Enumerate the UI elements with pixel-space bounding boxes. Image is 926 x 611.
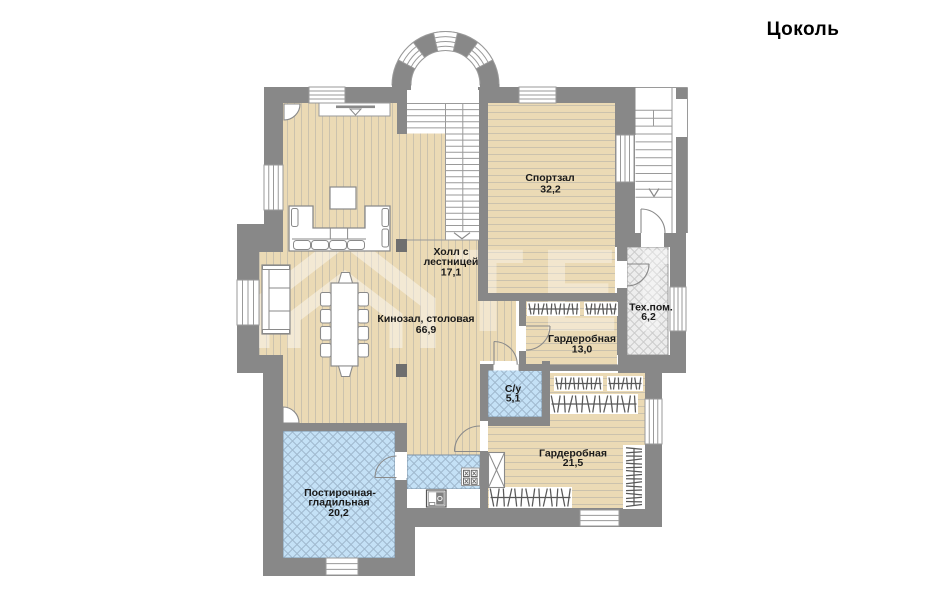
svg-text:17,1: 17,1 [441,267,462,279]
svg-text:13,0: 13,0 [572,344,593,356]
svg-text:5,1: 5,1 [506,393,521,405]
svg-text:6,2: 6,2 [641,311,656,323]
svg-text:20,2: 20,2 [328,507,349,519]
svg-text:32,2: 32,2 [540,183,561,195]
svg-text:66,9: 66,9 [416,324,437,336]
svg-text:21,5: 21,5 [563,457,584,469]
svg-text:Спортзал: Спортзал [525,172,574,184]
svg-text:Цоколь: Цоколь [767,19,840,40]
